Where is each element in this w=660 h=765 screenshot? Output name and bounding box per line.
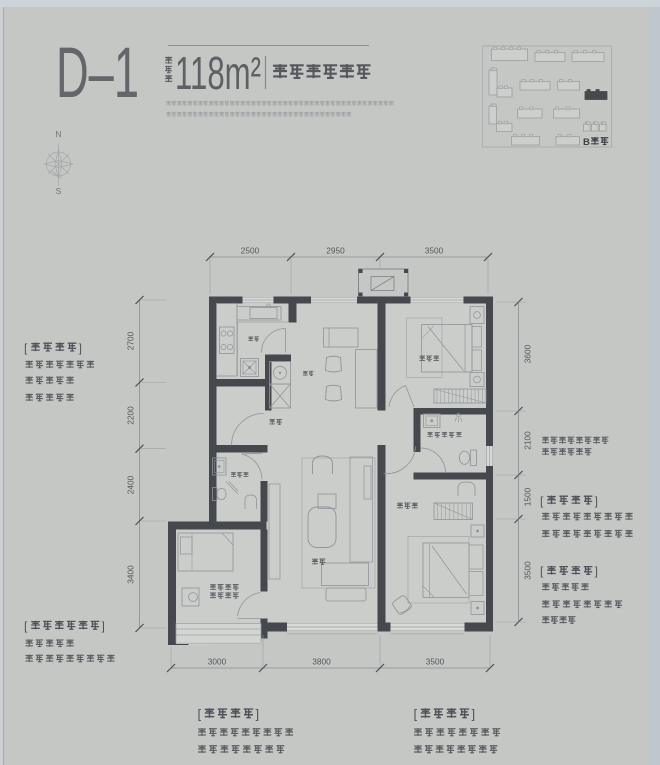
- svg-text:3500: 3500: [426, 657, 445, 667]
- svg-text:]: ]: [79, 341, 82, 355]
- svg-text:]: ]: [595, 494, 598, 508]
- svg-text:3500: 3500: [523, 561, 533, 580]
- svg-text:3500: 3500: [425, 246, 444, 256]
- svg-text:[: [: [198, 707, 202, 722]
- svg-text:2100: 2100: [523, 431, 533, 450]
- svg-text:2500: 2500: [241, 246, 260, 256]
- svg-text:]: ]: [256, 707, 260, 722]
- svg-text:N: N: [55, 129, 61, 139]
- svg-text:]: ]: [102, 619, 105, 633]
- svg-text:]: ]: [472, 707, 476, 722]
- svg-text:3000: 3000: [208, 657, 227, 667]
- svg-text:B: B: [583, 137, 590, 148]
- svg-text:[: [: [414, 707, 418, 722]
- svg-text:D–1: D–1: [56, 34, 139, 113]
- svg-text:3800: 3800: [312, 657, 331, 667]
- svg-text:118m²: 118m²: [175, 47, 261, 99]
- svg-text:3400: 3400: [126, 565, 136, 584]
- svg-text:2700: 2700: [126, 331, 136, 350]
- svg-text:3600: 3600: [523, 344, 533, 363]
- svg-text:]: ]: [595, 564, 598, 578]
- svg-text:S: S: [56, 186, 62, 196]
- svg-text:2200: 2200: [126, 406, 136, 425]
- svg-text:2400: 2400: [126, 475, 136, 494]
- svg-text:2950: 2950: [326, 246, 345, 256]
- svg-text:1500: 1500: [523, 487, 533, 506]
